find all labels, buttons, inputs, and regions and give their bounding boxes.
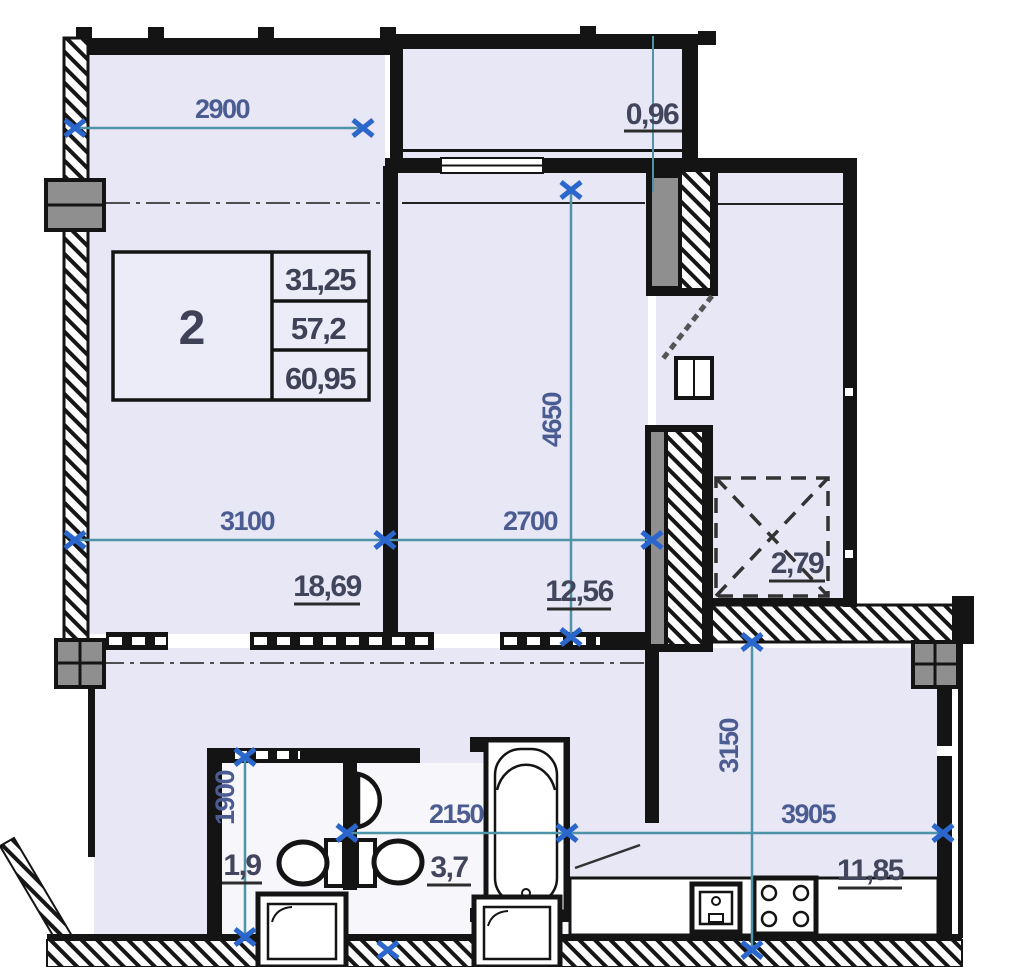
dim-2700: 2700 xyxy=(503,506,558,536)
floor-plan: 2 31,25 57,2 60,95 2900 3100 2700 4650 1… xyxy=(0,0,1024,967)
dim-3150: 3150 xyxy=(714,718,744,773)
balcony-right-wall xyxy=(682,34,698,166)
kitchen-sink xyxy=(692,884,740,932)
dim-3905: 3905 xyxy=(781,799,837,829)
bedroom-top-wall xyxy=(64,38,394,55)
entry-pier xyxy=(646,166,718,296)
balcony-left-wall xyxy=(390,34,403,166)
corridor-left-wall xyxy=(88,687,95,857)
bedroom-living-wall xyxy=(383,166,398,650)
area-kitchen: 11,85 xyxy=(837,854,904,887)
area-bathroom: 3,7 xyxy=(430,851,468,884)
kitchen-top-wall xyxy=(688,605,958,642)
toilet-right xyxy=(357,840,422,886)
stove xyxy=(754,878,816,934)
washing-machine xyxy=(258,894,346,967)
dim-3100: 3100 xyxy=(220,506,275,536)
balcony-top-wall xyxy=(390,34,698,49)
toilet-left xyxy=(279,840,344,886)
entry-door-jamb xyxy=(676,358,712,398)
area-bedroom: 18,69 xyxy=(293,570,361,603)
balcony-sill-line xyxy=(402,149,682,152)
dim-2150: 2150 xyxy=(429,799,484,829)
dim-1900: 1900 xyxy=(210,770,240,825)
column-kitchen xyxy=(913,642,958,687)
area-living: 12,56 xyxy=(545,575,613,608)
stamp-apartment-area: 57,2 xyxy=(291,311,346,346)
column-left-top xyxy=(46,180,104,230)
kitchen-left-wall xyxy=(645,652,659,823)
hall-right-wall xyxy=(843,158,857,607)
area-wc: 1,9 xyxy=(223,849,261,882)
cabinet xyxy=(474,897,560,967)
stamp-living-area: 31,25 xyxy=(285,262,356,297)
area-wardrobe: 2,79 xyxy=(771,547,824,580)
stamp-table: 2 31,25 57,2 60,95 xyxy=(113,252,369,400)
dim-2900: 2900 xyxy=(195,94,250,124)
dim-4650: 4650 xyxy=(537,392,567,447)
bathtub xyxy=(486,740,566,912)
floor-plan-drawing: 2 31,25 57,2 60,95 2900 3100 2700 4650 1… xyxy=(0,0,1024,967)
area-balcony: 0,96 xyxy=(626,98,679,131)
stamp-total-area: 60,95 xyxy=(285,361,356,396)
stamp-rooms-count: 2 xyxy=(179,302,206,355)
column-left-bottom xyxy=(56,640,104,687)
diagonal-wall xyxy=(0,838,72,944)
